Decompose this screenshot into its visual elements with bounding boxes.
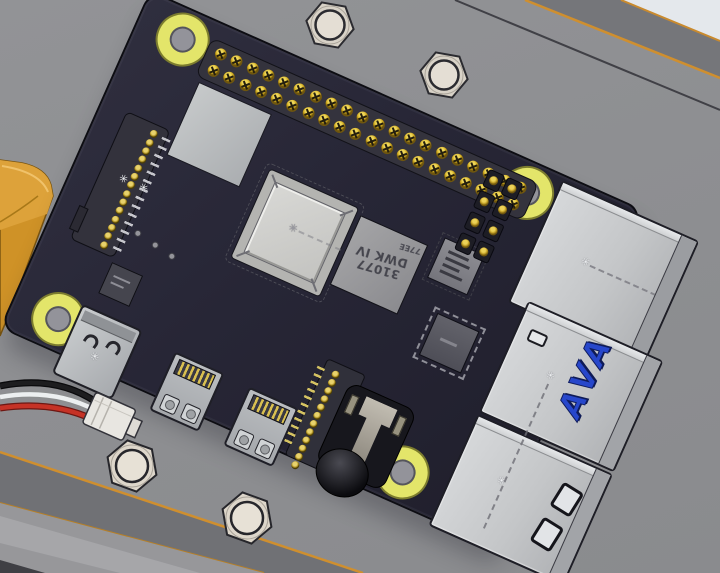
pin (300, 105, 316, 121)
sketch-point-icon: ✳ (88, 350, 101, 364)
ram-marking-corner: 77EE (398, 241, 422, 256)
usb-slot (549, 481, 584, 517)
pin (167, 252, 177, 262)
pin (99, 240, 110, 251)
connector-pins (173, 359, 216, 390)
usb-logo: AVA (550, 328, 621, 423)
pin (133, 228, 143, 238)
pin (465, 159, 481, 175)
jack-clip (344, 394, 359, 416)
pin (427, 161, 443, 177)
pin (442, 168, 458, 184)
pin (363, 133, 379, 149)
pin (490, 198, 513, 222)
pin (222, 70, 238, 86)
pin (229, 54, 245, 70)
pin (395, 147, 411, 163)
pin (213, 47, 229, 63)
pin (253, 84, 269, 100)
pmic-chip (98, 262, 143, 307)
standoff-nut (108, 440, 157, 491)
pin (418, 138, 434, 154)
dsi-latch (69, 205, 89, 233)
shell-cutout (105, 338, 124, 356)
pin (148, 129, 159, 140)
sketch-point-icon: ✳ (544, 369, 557, 383)
pin (285, 98, 301, 114)
pin (269, 91, 285, 107)
connector-foot (233, 428, 255, 450)
connector-foot (254, 438, 276, 460)
shell-cutout (83, 331, 102, 349)
pin (292, 82, 308, 98)
pin (348, 126, 364, 142)
pin (458, 175, 474, 191)
pin (449, 152, 465, 168)
cad-viewport[interactable]: 31077 DWK IV 77EE ✳ AVA ✳ ✳ (0, 0, 720, 573)
pin (316, 112, 332, 128)
pin (355, 110, 371, 126)
pin (260, 68, 276, 84)
connector-foot (179, 402, 201, 424)
pin (150, 240, 160, 250)
pin (371, 117, 387, 133)
usb-slot (526, 328, 549, 348)
pin (411, 154, 427, 170)
pin (386, 124, 402, 140)
pin (308, 89, 324, 105)
pin (237, 77, 253, 93)
pin (402, 131, 418, 147)
pin (323, 96, 339, 112)
usb-slot (529, 516, 564, 552)
lan-controller-chip (419, 313, 480, 374)
pin (245, 61, 261, 77)
connector-foot (158, 393, 180, 415)
pin (434, 145, 450, 161)
silkscreen-dots (133, 228, 183, 265)
standoff-nut (420, 52, 467, 97)
pin (206, 63, 222, 79)
connector-pins (247, 394, 290, 425)
pin (137, 154, 148, 165)
pin (379, 140, 395, 156)
pin (481, 219, 504, 243)
standoff-nut (223, 492, 272, 543)
pin (339, 103, 355, 119)
pin (276, 75, 292, 91)
pin (332, 119, 348, 135)
standoff-nut (306, 2, 353, 47)
